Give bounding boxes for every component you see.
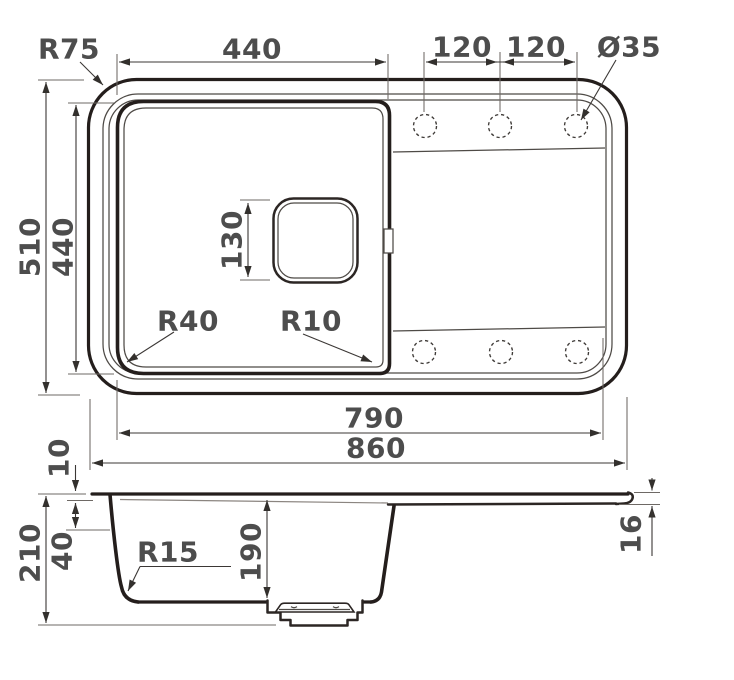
dim-label-hole-pitch-1: 120 [432,31,492,64]
profile-bowl-right-wall [371,506,394,602]
profile-drainboard-underside [388,504,616,505]
profile-back-rim-line [120,500,388,504]
dim-label-edge-thickness: 16 [615,514,648,554]
dim-label-bowl-corner-radius-right: R10 [280,305,342,338]
drain-opening-outer [274,199,358,283]
bowl-edge-notch [384,229,393,253]
dim-label-bottom-radius: R15 [137,536,199,569]
drawing-canvas: 440 R75 120 120 Ø35 510 440 130 R40 R10 [0,0,734,680]
dim-label-bowl-inner-depth: 190 [235,522,268,582]
dim-label-inner-length: 790 [344,402,404,435]
sink-technical-drawing: 440 R75 120 120 Ø35 510 440 130 R40 R10 [0,0,734,680]
dim-label-overall-depth: 510 [14,217,47,277]
dim-label-bowl-width: 440 [222,33,282,66]
dim-label-drain-size: 130 [216,210,249,270]
leader-bottom-radius [128,567,140,592]
dim-label-rim-depth: 40 [46,531,79,571]
dim-label-overall-length: 860 [346,432,406,465]
top-view: 440 R75 120 120 Ø35 510 440 130 R40 R10 [14,31,662,471]
dim-label-overall-height: 210 [14,523,47,583]
dim-label-bowl-depth: 440 [47,217,80,277]
dim-label-hole-pitch-2: 120 [506,31,566,64]
dim-label-rim-thickness: 10 [43,438,76,478]
dim-label-hole-diameter: Ø35 [597,31,661,64]
strainer-cover [276,603,355,612]
side-profile-view: 10 40 210 R15 190 16 [14,438,661,625]
dim-label-corner-radius: R75 [38,33,100,66]
profile-bowl-left-wall [110,495,138,603]
dim-label-bowl-corner-radius: R40 [157,305,219,338]
